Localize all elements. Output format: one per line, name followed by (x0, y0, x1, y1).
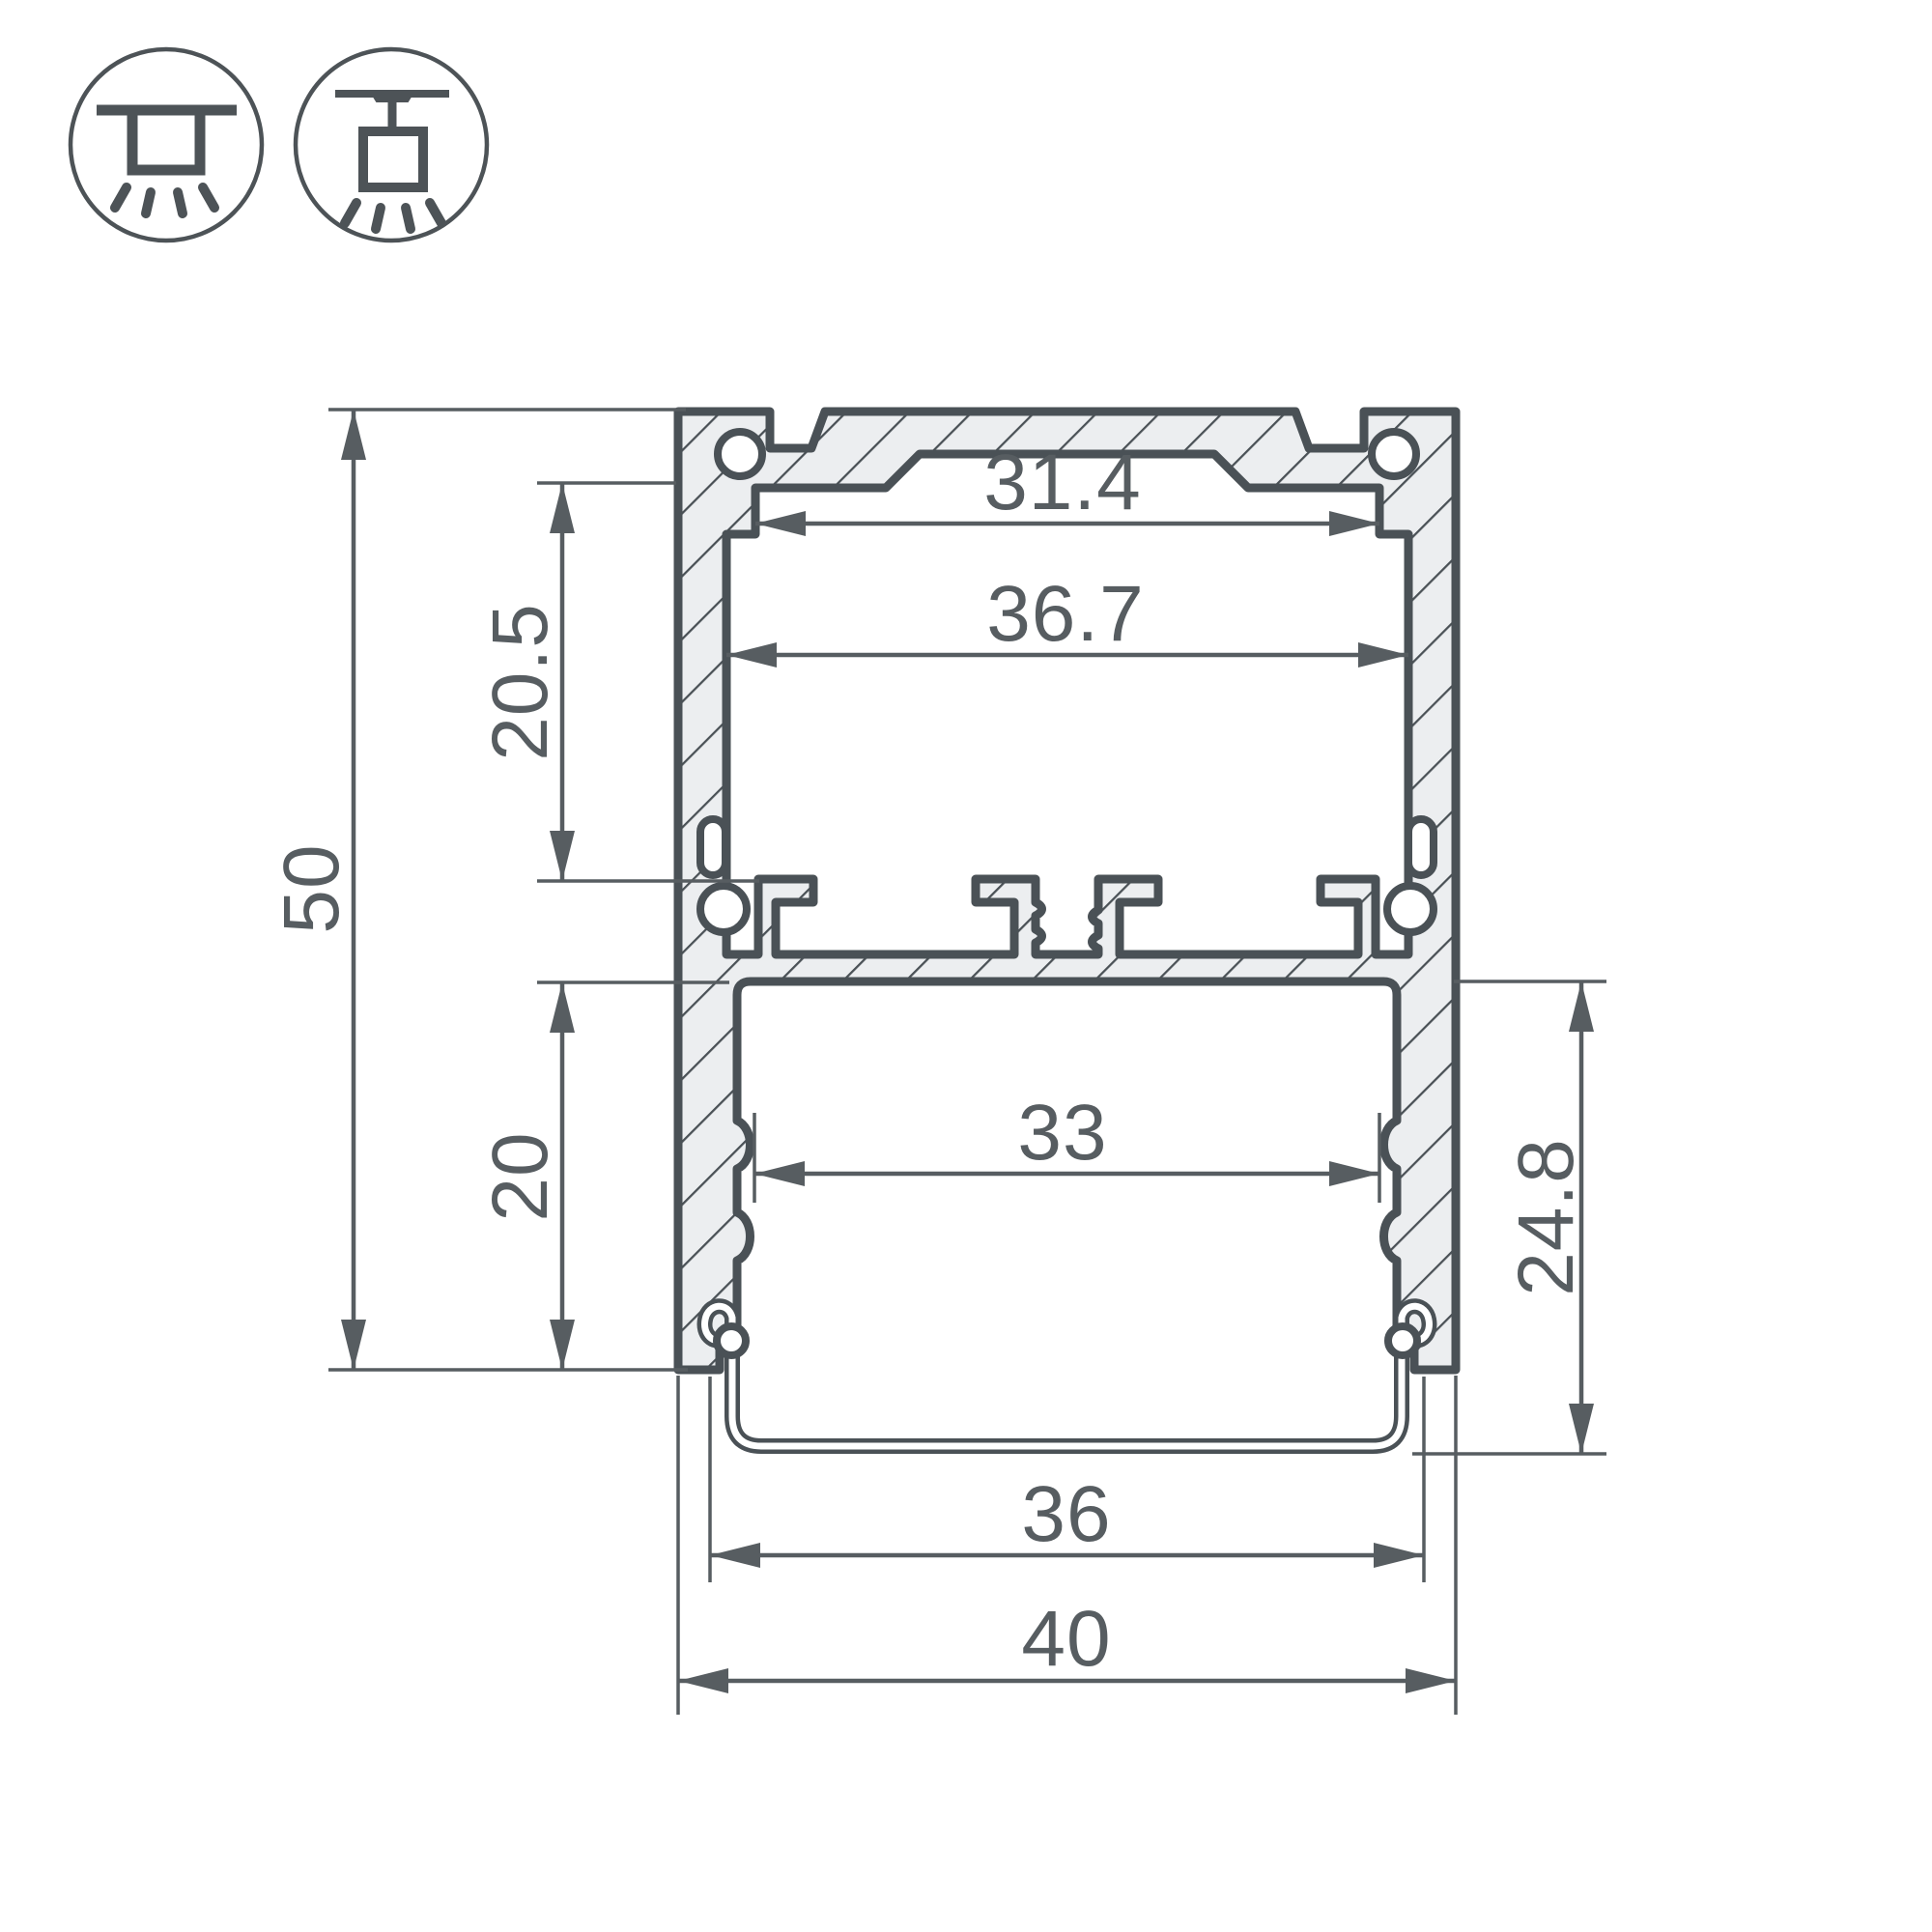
dim-label-diffuser-width: 36 (1021, 1470, 1111, 1558)
light-rays (115, 187, 214, 213)
wall-slot-left (700, 819, 725, 875)
diffuser (705, 1306, 1430, 1446)
dim-overall-height (328, 410, 688, 1370)
dim-label-led-platform-width: 33 (1017, 1089, 1107, 1177)
dimension-labels: 31.4 36.7 33 36 40 50 20.5 20 24.8 (268, 439, 1590, 1683)
profile-technical-drawing: 31.4 36.7 33 36 40 50 20.5 20 24.8 (0, 0, 1932, 1932)
light-rays (345, 203, 441, 229)
foot-hole-left (717, 1326, 746, 1355)
screw-hole-mid-right (1387, 886, 1434, 932)
dim-label-overall-height: 50 (268, 843, 355, 933)
dim-label-upper-chamber-height: 20.5 (476, 603, 564, 761)
icon-circle (296, 49, 487, 241)
screw-hole-top-left (718, 432, 762, 476)
dim-label-diffuser-section-height: 24.8 (1502, 1138, 1590, 1296)
dim-label-lower-chamber-height: 20 (476, 1131, 564, 1221)
drawing-canvas: 31.4 36.7 33 36 40 50 20.5 20 24.8 (0, 0, 1932, 1932)
icon-circle (71, 49, 262, 241)
aluminum-body (678, 412, 1456, 1370)
dim-label-overall-width: 40 (1021, 1595, 1111, 1683)
profile-cross-section (678, 412, 1456, 1446)
dim-label-top-opening: 31.4 (983, 439, 1142, 526)
dim-label-upper-chamber-width: 36.7 (986, 570, 1145, 658)
surface-mount-icon (71, 49, 262, 241)
foot-hole-right (1388, 1326, 1417, 1355)
pendant-mount-icon (296, 49, 487, 241)
screw-hole-mid-left (700, 886, 747, 932)
luminaire-box (132, 110, 200, 170)
luminaire-box (363, 131, 423, 187)
screw-hole-top-right (1372, 432, 1416, 476)
wall-slot-right (1408, 819, 1434, 875)
